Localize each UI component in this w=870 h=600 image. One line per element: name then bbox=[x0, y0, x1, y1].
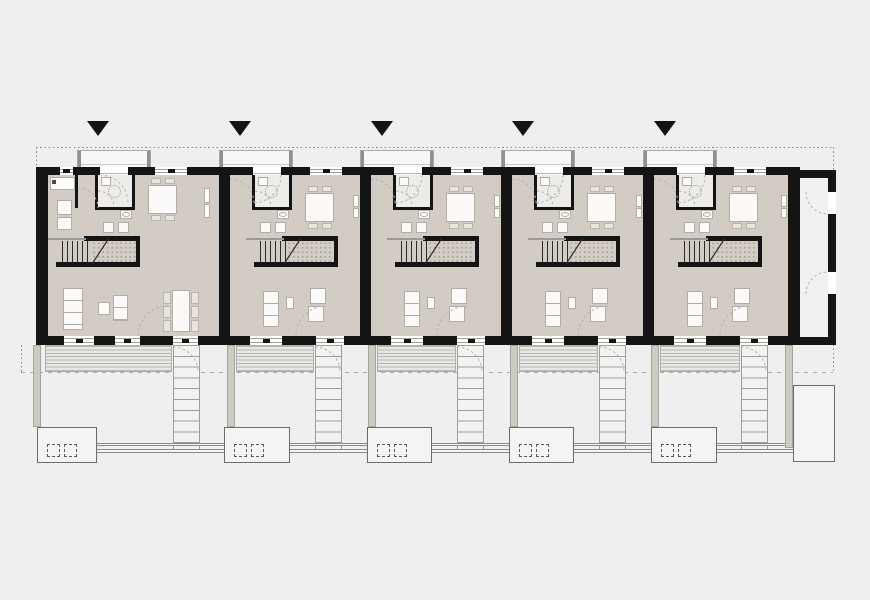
stair-tread bbox=[411, 241, 412, 262]
toilet-bowl bbox=[547, 185, 560, 198]
kitchen-counter bbox=[204, 204, 210, 218]
garden-fence bbox=[574, 443, 651, 446]
toilet bbox=[682, 177, 692, 186]
hall-chair bbox=[699, 222, 710, 233]
wc-wall-left bbox=[534, 175, 537, 210]
dining-chair bbox=[151, 215, 161, 221]
kitchen-seat bbox=[57, 200, 72, 215]
hedge bbox=[785, 345, 793, 448]
armchair bbox=[590, 306, 606, 322]
unit-4 bbox=[512, 175, 643, 336]
toilet bbox=[258, 177, 268, 186]
hall-chair bbox=[416, 222, 427, 233]
stair-tread bbox=[704, 241, 705, 262]
garden-boundary-dashed-line bbox=[21, 372, 833, 373]
window-mullion-tick bbox=[545, 339, 552, 343]
door-threshold bbox=[253, 173, 281, 174]
terrace-deck bbox=[377, 345, 456, 372]
wc-wall-right bbox=[430, 175, 433, 207]
wc-wall-right bbox=[571, 175, 574, 207]
dining-chair bbox=[732, 186, 742, 192]
side-table bbox=[427, 297, 435, 309]
window-mullion-tick bbox=[605, 169, 612, 173]
annex-door-opening bbox=[828, 272, 836, 294]
terrace-door-opening bbox=[674, 336, 706, 345]
bin-storage bbox=[64, 444, 77, 457]
wc-wall-left bbox=[95, 175, 98, 210]
stair-upper-flight-hatch bbox=[287, 241, 333, 262]
cooktop-mark bbox=[52, 180, 56, 184]
stair-tread bbox=[694, 241, 695, 262]
porch-step-line bbox=[505, 164, 571, 165]
entrance-marker-triangle-3 bbox=[371, 121, 393, 136]
dining-chair bbox=[732, 223, 742, 229]
dining-table bbox=[729, 193, 758, 222]
toilet bbox=[101, 177, 111, 186]
porch-post-left bbox=[502, 151, 505, 168]
washbasin-oval bbox=[561, 212, 569, 217]
terrace-door-opening bbox=[457, 336, 485, 345]
stair-wall-bottom bbox=[678, 262, 762, 267]
kitchen-seat bbox=[57, 217, 72, 230]
garden-fence bbox=[97, 449, 224, 453]
hall-chair bbox=[557, 222, 568, 233]
porch-step-line bbox=[647, 164, 713, 165]
hall-chair bbox=[401, 222, 412, 233]
stair-tread bbox=[401, 241, 402, 262]
garden-shed bbox=[509, 427, 574, 463]
porch-step-line bbox=[223, 164, 289, 165]
side-table bbox=[710, 297, 718, 309]
toilet-bowl bbox=[108, 185, 121, 198]
garden-stairs bbox=[741, 345, 768, 453]
stair-tread bbox=[699, 241, 700, 262]
window-mullion-tick bbox=[327, 339, 334, 343]
kitchen-counter bbox=[781, 208, 787, 218]
kitchen-counter bbox=[353, 208, 359, 218]
dining-chair bbox=[449, 186, 459, 192]
terrace-door-opening bbox=[115, 336, 140, 345]
dining-chair bbox=[308, 223, 318, 229]
stair-tread bbox=[260, 241, 261, 262]
party-wall bbox=[501, 167, 512, 345]
stair-upper-flight-hatch bbox=[711, 241, 757, 262]
entry-door-opening bbox=[253, 167, 281, 175]
stair-tread bbox=[285, 241, 286, 262]
window-opening bbox=[592, 167, 624, 175]
armchair bbox=[449, 306, 465, 322]
sofa bbox=[687, 291, 703, 327]
armchair bbox=[734, 288, 750, 304]
stair-tread bbox=[416, 241, 417, 262]
entrance-porch bbox=[360, 150, 434, 168]
bin-storage bbox=[234, 444, 247, 457]
hedge bbox=[227, 345, 235, 427]
porch-step-line bbox=[364, 164, 430, 165]
kitchen-counter bbox=[494, 195, 500, 207]
door-threshold bbox=[100, 173, 128, 174]
boundary-line-left-low bbox=[21, 345, 22, 373]
unit-1 bbox=[48, 175, 219, 336]
dining-table bbox=[587, 193, 616, 222]
hall-chair bbox=[103, 222, 114, 233]
coffee-table bbox=[98, 302, 110, 315]
garden-fence bbox=[290, 443, 367, 446]
garden-stairs bbox=[315, 345, 342, 453]
terrace-deck bbox=[236, 345, 314, 372]
stair-handrail bbox=[246, 238, 284, 240]
stair-tread bbox=[72, 241, 73, 262]
annex-interior bbox=[800, 178, 828, 337]
party-wall bbox=[360, 167, 371, 345]
garden-shed bbox=[651, 427, 717, 463]
armchair bbox=[451, 288, 467, 304]
side-table bbox=[286, 297, 294, 309]
stair-tread bbox=[426, 241, 427, 262]
toilet bbox=[399, 177, 409, 186]
stair-tread bbox=[270, 241, 271, 262]
dining-chair bbox=[191, 292, 199, 304]
dining-chair bbox=[463, 223, 473, 229]
entrance-marker-triangle-1 bbox=[87, 121, 109, 136]
terrace-door-opening bbox=[598, 336, 626, 345]
stair-tread bbox=[62, 241, 63, 262]
window-opening bbox=[60, 167, 73, 175]
bin-storage bbox=[536, 444, 549, 457]
door-swing-arc bbox=[230, 179, 254, 203]
porch-post-left bbox=[361, 151, 364, 168]
kitchen-counter bbox=[494, 208, 500, 218]
garden-stairs bbox=[599, 345, 626, 453]
window-mullion-tick bbox=[182, 339, 189, 343]
garden-stairs bbox=[173, 345, 200, 453]
exterior-wall-right bbox=[788, 167, 800, 345]
door-swing-arc bbox=[512, 179, 536, 203]
stair-tread bbox=[67, 241, 68, 262]
terrace-deck bbox=[519, 345, 598, 372]
stair-tread bbox=[87, 241, 88, 262]
dining-chair bbox=[163, 306, 171, 318]
dining-chair bbox=[322, 223, 332, 229]
door-threshold bbox=[677, 173, 705, 174]
window-opening bbox=[310, 167, 342, 175]
wc-wall-left bbox=[676, 175, 679, 210]
dining-chair bbox=[322, 186, 332, 192]
wc-wall-right bbox=[713, 175, 716, 207]
terrace-door-opening bbox=[740, 336, 768, 345]
terrace-door-opening bbox=[316, 336, 344, 345]
porch-step-line bbox=[81, 164, 147, 165]
boundary-line-left-top bbox=[36, 147, 37, 167]
entry-door-opening bbox=[394, 167, 422, 175]
dining-chair bbox=[604, 186, 614, 192]
door-threshold bbox=[394, 173, 422, 174]
dining-chair bbox=[191, 320, 199, 332]
stair-tread bbox=[77, 241, 78, 262]
stair-tread bbox=[406, 241, 407, 262]
porch-post-right bbox=[147, 151, 150, 168]
entrance-porch bbox=[501, 150, 575, 168]
window-mullion-tick bbox=[63, 169, 70, 173]
party-wall bbox=[219, 167, 230, 345]
window-mullion-tick bbox=[323, 169, 330, 173]
window-opening bbox=[734, 167, 766, 175]
window-mullion-tick bbox=[263, 339, 270, 343]
bin-storage bbox=[678, 444, 691, 457]
window-mullion-tick bbox=[404, 339, 411, 343]
window-mullion-tick bbox=[124, 339, 131, 343]
stair-upper-flight-hatch bbox=[428, 241, 474, 262]
window-mullion-tick bbox=[76, 339, 83, 343]
stair-wall-bottom bbox=[395, 262, 479, 267]
annex-wall-top bbox=[800, 170, 836, 178]
sofa bbox=[404, 291, 420, 327]
sofa bbox=[545, 291, 561, 327]
garden-fence bbox=[290, 449, 367, 453]
porch-post-right bbox=[430, 151, 433, 168]
porch-post-right bbox=[289, 151, 292, 168]
stair-handrail bbox=[528, 238, 566, 240]
wc-wall-right bbox=[132, 175, 135, 207]
garden-fence bbox=[97, 443, 224, 446]
garden-fence bbox=[432, 449, 509, 453]
dining-table bbox=[446, 193, 475, 222]
wc-wall-left bbox=[393, 175, 396, 210]
stair-tread bbox=[552, 241, 553, 262]
dining-table bbox=[148, 185, 177, 214]
armchair bbox=[592, 288, 608, 304]
armchair bbox=[310, 288, 326, 304]
stair-tread bbox=[709, 241, 710, 262]
entrance-porch bbox=[219, 150, 293, 168]
kitchen-counter bbox=[636, 208, 642, 218]
stair-handrail bbox=[48, 238, 86, 240]
bin-storage bbox=[661, 444, 674, 457]
wc-wall-left bbox=[252, 175, 255, 210]
hall-chair bbox=[260, 222, 271, 233]
terrace-door-opening bbox=[64, 336, 94, 345]
terrace-door-opening bbox=[532, 336, 564, 345]
dining-chair bbox=[604, 223, 614, 229]
large-garden-shed bbox=[793, 385, 835, 462]
terrace-door-opening bbox=[391, 336, 423, 345]
hedge bbox=[651, 345, 659, 427]
stair-handrail bbox=[387, 238, 425, 240]
sofa bbox=[63, 288, 83, 330]
armchair bbox=[732, 306, 748, 322]
garden-fence bbox=[717, 443, 793, 446]
terrace-deck bbox=[660, 345, 740, 372]
terrace-door-opening bbox=[250, 336, 282, 345]
sofa bbox=[263, 291, 279, 327]
porch-post-left bbox=[220, 151, 223, 168]
toilet-bowl bbox=[265, 185, 278, 198]
entry-door-opening bbox=[535, 167, 563, 175]
stair-wall-bottom bbox=[254, 262, 338, 267]
dining-chair bbox=[746, 223, 756, 229]
unit-5 bbox=[654, 175, 788, 336]
window-mullion-tick bbox=[687, 339, 694, 343]
dining-chair bbox=[449, 223, 459, 229]
stair-tread bbox=[275, 241, 276, 262]
bin-storage bbox=[251, 444, 264, 457]
entry-door-opening bbox=[677, 167, 705, 175]
window-opening bbox=[155, 167, 187, 175]
stair-upper-flight-hatch bbox=[92, 241, 136, 262]
stair-tread bbox=[684, 241, 685, 262]
entrance-porch bbox=[77, 150, 151, 168]
stair-wall-bottom bbox=[56, 262, 140, 267]
window-mullion-tick bbox=[168, 169, 175, 173]
washbasin-oval bbox=[279, 212, 287, 217]
bin-storage bbox=[377, 444, 390, 457]
entrance-marker-triangle-5 bbox=[654, 121, 676, 136]
stair-tread bbox=[421, 241, 422, 262]
porch-post-left bbox=[644, 151, 647, 168]
dining-chair bbox=[165, 215, 175, 221]
entrance-porch bbox=[643, 150, 717, 168]
garden-fence bbox=[432, 443, 509, 446]
dining-table bbox=[305, 193, 334, 222]
hedge bbox=[368, 345, 376, 427]
floor-plan-canvas bbox=[0, 0, 870, 600]
stair-tread bbox=[689, 241, 690, 262]
kitchen-counter bbox=[353, 195, 359, 207]
stair-tread bbox=[280, 241, 281, 262]
terrace-door-opening bbox=[173, 336, 198, 345]
hall-chair bbox=[542, 222, 553, 233]
porch-post-left bbox=[78, 151, 81, 168]
terrace-deck bbox=[45, 345, 172, 372]
stair-tread bbox=[542, 241, 543, 262]
hall-chair bbox=[275, 222, 286, 233]
dining-chair bbox=[308, 186, 318, 192]
garden-shed bbox=[367, 427, 432, 463]
entrance-marker-triangle-2 bbox=[229, 121, 251, 136]
stair-wall-bottom bbox=[536, 262, 620, 267]
garden-shed bbox=[224, 427, 290, 463]
party-wall bbox=[643, 167, 654, 345]
hall-chair bbox=[684, 222, 695, 233]
entrance-marker-triangle-4 bbox=[512, 121, 534, 136]
hedge bbox=[510, 345, 518, 427]
bin-storage bbox=[519, 444, 532, 457]
dining-chair bbox=[463, 186, 473, 192]
toilet-bowl bbox=[406, 185, 419, 198]
bin-storage bbox=[47, 444, 60, 457]
door-swing-arc bbox=[371, 179, 395, 203]
dining-chair bbox=[165, 178, 175, 184]
window-opening bbox=[451, 167, 483, 175]
stair-tread bbox=[567, 241, 568, 262]
porch-post-right bbox=[571, 151, 574, 168]
entry-door-opening bbox=[100, 167, 128, 175]
toilet bbox=[540, 177, 550, 186]
stair-tread bbox=[547, 241, 548, 262]
dining-chair bbox=[590, 186, 600, 192]
window-mullion-tick bbox=[468, 339, 475, 343]
dining-chair bbox=[151, 178, 161, 184]
stair-upper-flight-hatch bbox=[569, 241, 615, 262]
dining-chair bbox=[191, 306, 199, 318]
exterior-wall-left bbox=[36, 167, 48, 345]
garden-fence bbox=[574, 449, 651, 453]
kitchen-counter bbox=[636, 195, 642, 207]
wc-wall-right bbox=[289, 175, 292, 207]
stair-tread bbox=[557, 241, 558, 262]
kitchen-counter bbox=[204, 188, 210, 203]
hedge bbox=[33, 345, 41, 427]
door-threshold bbox=[535, 173, 563, 174]
hall-chair bbox=[118, 222, 129, 233]
window-mullion-tick bbox=[464, 169, 471, 173]
window-mullion-tick bbox=[609, 339, 616, 343]
toilet-bowl bbox=[689, 185, 702, 198]
washbasin-oval bbox=[122, 212, 130, 217]
armchair bbox=[308, 306, 324, 322]
washbasin-oval bbox=[703, 212, 711, 217]
annex-door-opening bbox=[828, 192, 836, 214]
bin-storage bbox=[394, 444, 407, 457]
door-swing-arc bbox=[654, 179, 678, 203]
stair-tread bbox=[265, 241, 266, 262]
washbasin-oval bbox=[420, 212, 428, 217]
garden-stairs bbox=[457, 345, 484, 453]
kitchen-counter bbox=[781, 195, 787, 207]
kitchen-room-wall bbox=[75, 175, 78, 208]
stair-tread bbox=[562, 241, 563, 262]
porch-post-right bbox=[713, 151, 716, 168]
garden-shed bbox=[37, 427, 97, 463]
dining-chair bbox=[163, 292, 171, 304]
boundary-line-top bbox=[36, 147, 833, 148]
dining-chair bbox=[746, 186, 756, 192]
window-mullion-tick bbox=[747, 169, 754, 173]
annex-wall-bottom bbox=[800, 337, 836, 345]
side-table bbox=[568, 297, 576, 309]
stair-tread bbox=[82, 241, 83, 262]
garden-fence bbox=[717, 449, 793, 453]
unit-2 bbox=[230, 175, 360, 336]
large-dining-table bbox=[172, 290, 190, 332]
dining-chair bbox=[590, 223, 600, 229]
armchair bbox=[113, 295, 128, 321]
dining-chair bbox=[163, 320, 171, 332]
unit-3 bbox=[371, 175, 501, 336]
window-mullion-tick bbox=[751, 339, 758, 343]
stair-handrail bbox=[670, 238, 708, 240]
